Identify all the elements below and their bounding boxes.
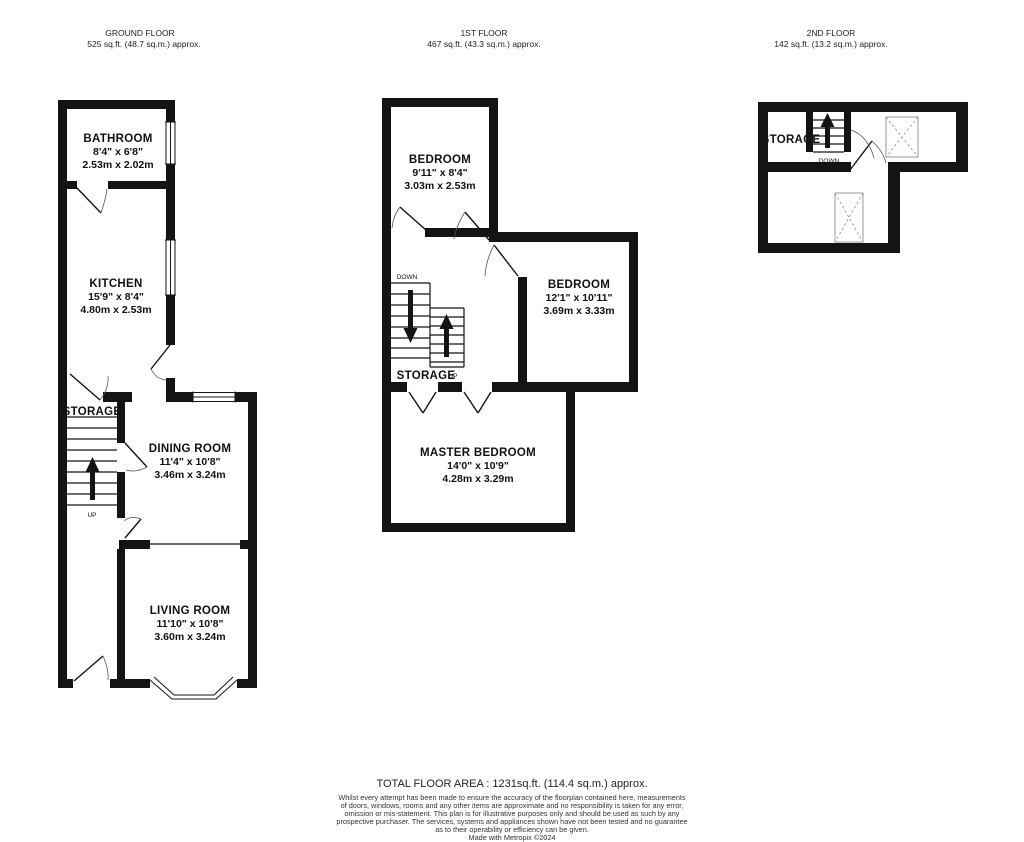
- ground-floor-plan: STORAGE UP BATHROOM 8'4" x 6'8" 2.53m x …: [58, 100, 257, 699]
- living-room-door: [124, 517, 141, 538]
- ground-floor-stairs: [67, 417, 117, 505]
- kitchen-dining-door: [151, 345, 170, 380]
- first-floor-plan: UP: [382, 98, 638, 532]
- master-bedroom-doors: [409, 392, 491, 413]
- skylight-1: [886, 117, 918, 157]
- bedroom2-door: [454, 212, 518, 276]
- svg-text:DINING ROOM: DINING ROOM: [149, 443, 232, 455]
- bathroom-window: [165, 122, 176, 164]
- svg-text:15'9" x 8'4": 15'9" x 8'4": [88, 291, 144, 303]
- svg-text:9'11" x 8'4": 9'11" x 8'4": [412, 167, 467, 179]
- second-floor-landing-door: [850, 130, 886, 170]
- floorplan-drawing: GROUND FLOOR 525 sq.ft. (48.7 sq.m.) app…: [0, 0, 1024, 842]
- total-floor-area: TOTAL FLOOR AREA : 1231sq.ft. (114.4 sq.…: [376, 778, 647, 790]
- svg-text:11'10" x 10'8": 11'10" x 10'8": [157, 618, 224, 630]
- svg-text:8'4" x 6'8": 8'4" x 6'8": [93, 146, 143, 158]
- footer: TOTAL FLOOR AREA : 1231sq.ft. (114.4 sq.…: [336, 778, 687, 842]
- svg-text:3.46m x 3.24m: 3.46m x 3.24m: [154, 469, 225, 481]
- first-down-label: DOWN: [397, 274, 418, 281]
- hall-door: [70, 374, 108, 400]
- svg-text:3.03m x 2.53m: 3.03m x 2.53m: [404, 180, 475, 192]
- kitchen-label: KITCHEN 15'9" x 8'4" 4.80m x 2.53m: [80, 278, 151, 316]
- bathroom-label: BATHROOM 8'4" x 6'8" 2.53m x 2.02m: [82, 133, 153, 171]
- bathroom-door: [76, 187, 107, 213]
- ground-up-label: UP: [87, 512, 96, 519]
- first-floor-area: 467 sq.ft. (43.3 sq.m.) approx.: [427, 39, 540, 49]
- svg-text:BEDROOM: BEDROOM: [409, 154, 471, 166]
- svg-text:BATHROOM: BATHROOM: [83, 133, 152, 145]
- svg-text:BEDROOM: BEDROOM: [548, 279, 610, 291]
- svg-text:12'1" x 10'11": 12'1" x 10'11": [546, 292, 613, 304]
- front-door: [74, 656, 108, 681]
- bay-window: [150, 677, 237, 699]
- svg-text:3.69m x 3.33m: 3.69m x 3.33m: [543, 305, 614, 317]
- floorplan-page: GROUND FLOOR 525 sq.ft. (48.7 sq.m.) app…: [0, 0, 1024, 842]
- up-arrow: [821, 113, 835, 148]
- svg-text:KITCHEN: KITCHEN: [89, 278, 142, 290]
- skylight-2: [835, 193, 863, 242]
- dining-room-label: DINING ROOM 11'4" x 10'8" 3.46m x 3.24m: [149, 443, 232, 481]
- second-floor-area: 142 sq.ft. (13.2 sq.m.) approx.: [774, 39, 887, 49]
- svg-text:14'0" x 10'9": 14'0" x 10'9": [447, 460, 509, 472]
- floor-headers: GROUND FLOOR 525 sq.ft. (48.7 sq.m.) app…: [87, 28, 887, 49]
- ground-storage-label: STORAGE: [63, 406, 122, 418]
- second-floor-stairs: [813, 113, 844, 152]
- svg-text:3.60m x 3.24m: 3.60m x 3.24m: [154, 631, 225, 643]
- bedroom1-label: BEDROOM 9'11" x 8'4" 3.03m x 2.53m: [404, 154, 475, 192]
- svg-text:LIVING ROOM: LIVING ROOM: [150, 605, 231, 617]
- dining-door: [125, 443, 147, 471]
- kitchen-window: [165, 240, 176, 295]
- svg-text:4.28m x 3.29m: 4.28m x 3.29m: [442, 473, 513, 485]
- svg-text:MASTER BEDROOM: MASTER BEDROOM: [420, 447, 536, 459]
- second-floor-title: 2ND FLOOR: [807, 28, 856, 38]
- credit-line: Made with Metropix ©2024: [469, 833, 556, 842]
- ground-floor-title: GROUND FLOOR: [105, 28, 174, 38]
- svg-text:2.53m x 2.02m: 2.53m x 2.02m: [82, 159, 153, 171]
- first-floor-title: 1ST FLOOR: [460, 28, 507, 38]
- living-room-label: LIVING ROOM 11'10" x 10'8" 3.60m x 3.24m: [150, 605, 231, 643]
- first-floor-stairs: [391, 283, 464, 367]
- second-floor-plan: STORAGE DOWN: [758, 102, 968, 253]
- bedroom1-door: [392, 207, 427, 231]
- dining-window: [193, 391, 235, 403]
- svg-text:4.80m x 2.53m: 4.80m x 2.53m: [80, 304, 151, 316]
- ground-floor-area: 525 sq.ft. (48.7 sq.m.) approx.: [87, 39, 200, 49]
- bedroom2-label: BEDROOM 12'1" x 10'11" 3.69m x 3.33m: [543, 279, 614, 317]
- second-down-label: DOWN: [819, 158, 840, 165]
- svg-text:11'4" x 10'8": 11'4" x 10'8": [159, 456, 220, 468]
- first-storage-label: STORAGE: [397, 370, 456, 382]
- master-bedroom-label: MASTER BEDROOM 14'0" x 10'9" 4.28m x 3.2…: [420, 447, 536, 485]
